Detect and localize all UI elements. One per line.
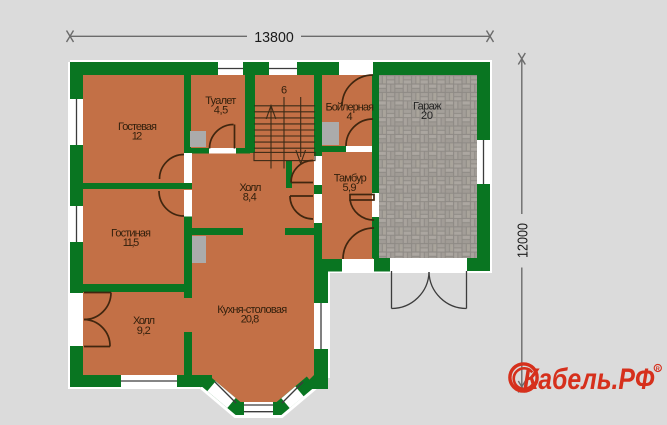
svg-text:8,4: 8,4 (243, 191, 257, 203)
svg-text:11,5: 11,5 (123, 237, 140, 249)
svg-text:4: 4 (346, 111, 352, 123)
svg-text:20: 20 (421, 110, 433, 122)
svg-text:R: R (656, 367, 660, 373)
svg-text:12000: 12000 (515, 223, 532, 258)
svg-text:12: 12 (132, 131, 143, 143)
svg-text:4,5: 4,5 (214, 105, 229, 117)
svg-text:6: 6 (281, 85, 287, 97)
svg-text:13800: 13800 (254, 29, 294, 46)
svg-text:5,9: 5,9 (343, 182, 357, 194)
svg-text:9,2: 9,2 (137, 325, 151, 337)
svg-text:Кабель.РФ: Кабель.РФ (523, 362, 655, 396)
svg-text:20,8: 20,8 (241, 314, 260, 326)
